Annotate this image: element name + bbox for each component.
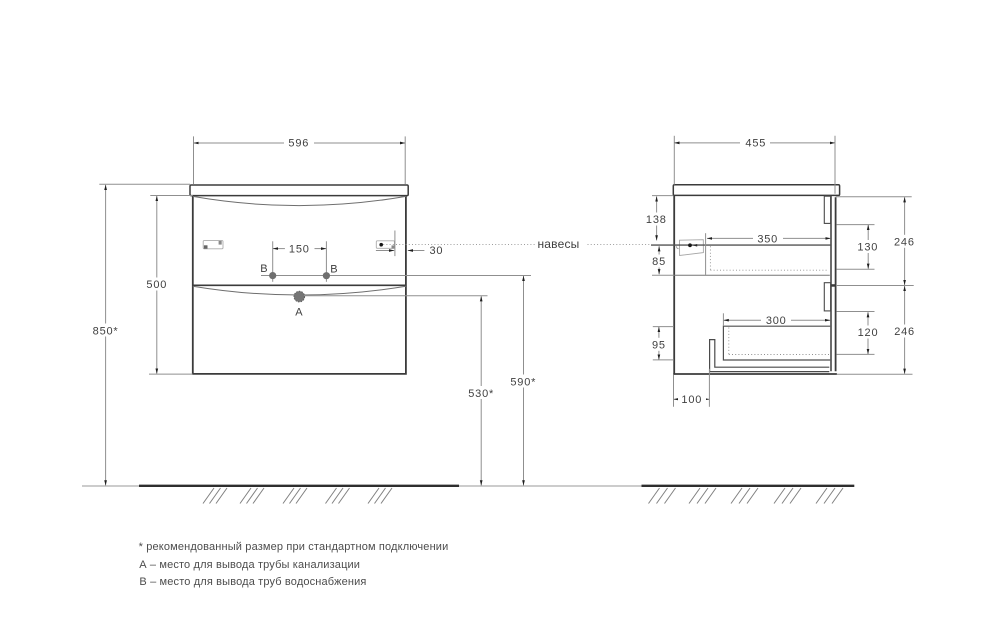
svg-text:100: 100: [681, 394, 702, 406]
svg-text:138: 138: [646, 214, 667, 226]
svg-text:150: 150: [289, 243, 310, 255]
svg-text:В – место для вывода труб водо: В – место для вывода труб водоснабжения: [139, 576, 366, 588]
svg-text:B: B: [260, 263, 268, 275]
svg-text:596: 596: [288, 138, 309, 150]
svg-text:85: 85: [652, 256, 666, 268]
svg-text:B: B: [330, 263, 338, 275]
svg-text:A: A: [295, 307, 303, 319]
svg-text:* рекомендованный размер при с: * рекомендованный размер при стандартном…: [139, 541, 449, 553]
svg-text:530*: 530*: [468, 388, 494, 400]
svg-text:500: 500: [146, 279, 167, 291]
svg-text:350: 350: [757, 233, 778, 245]
svg-text:130: 130: [857, 242, 878, 254]
svg-text:246: 246: [894, 326, 915, 338]
svg-text:850*: 850*: [93, 326, 119, 338]
svg-text:30: 30: [429, 245, 443, 257]
svg-text:455: 455: [745, 138, 766, 150]
svg-text:246: 246: [894, 237, 915, 249]
svg-text:95: 95: [652, 340, 666, 352]
svg-text:590*: 590*: [510, 376, 536, 388]
svg-text:А – место для вывода трубы кан: А – место для вывода трубы канализации: [139, 559, 360, 571]
svg-text:300: 300: [766, 315, 787, 327]
svg-text:120: 120: [858, 327, 879, 339]
svg-text:навесы: навесы: [537, 237, 579, 251]
